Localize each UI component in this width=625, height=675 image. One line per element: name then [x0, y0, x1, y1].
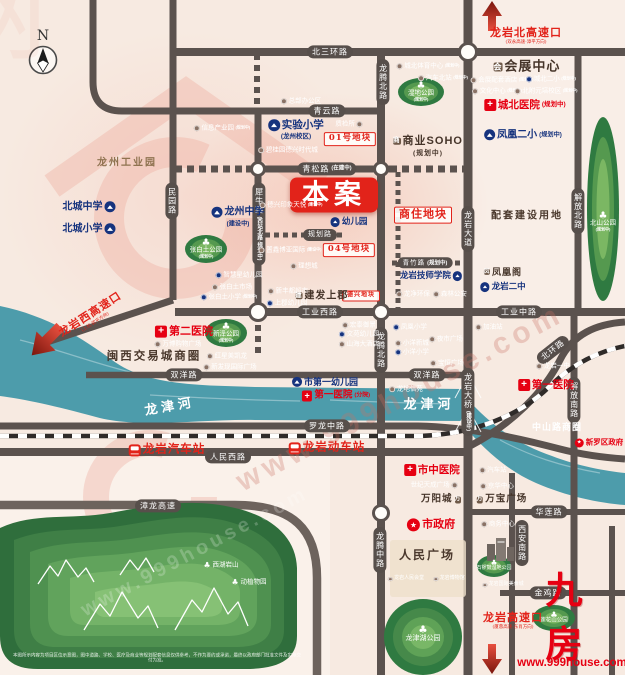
highway-exit-label-text: 龙岩高速口	[483, 612, 543, 625]
district-label-99: 中山路商圈	[532, 422, 582, 432]
tree-icon: ♣	[418, 626, 427, 635]
road-pill-text: 双洋路	[414, 370, 441, 379]
minor-poi-text: 城北二小	[534, 75, 560, 82]
park-label-subtext: (规划中)	[199, 254, 214, 258]
school-poi-text: 凤凰二小	[497, 129, 537, 141]
school-poi-text: 实验小学	[282, 119, 324, 131]
park-label-108: ♣动植物园	[232, 580, 267, 587]
minor-poi-72: 上郡幼儿园	[267, 299, 307, 306]
tree-icon: ♣	[232, 580, 239, 587]
poi-dot-icon	[433, 577, 438, 582]
poi-dot-icon	[194, 125, 200, 131]
minor-poi-87: 加油站	[475, 323, 502, 330]
road-pill-text: 工业西路	[302, 307, 338, 316]
landmark-icon: 凤	[484, 269, 490, 275]
school-icon	[105, 202, 116, 213]
logo-url: www.999house.com	[517, 657, 625, 669]
road-pill-text: 北三环路	[312, 47, 348, 56]
poi-dot-icon	[339, 341, 345, 347]
road-pill-13: 华莲路	[531, 505, 568, 518]
minor-poi-58: 总部办公区	[281, 97, 321, 104]
park-label-100: ♣张白土公园(规划中)	[190, 239, 223, 258]
poi-dot-icon	[388, 577, 393, 582]
school-poi-text: 龙州中学	[225, 207, 265, 219]
hospital-cross-icon	[484, 99, 496, 111]
area-label-32: 闽西交易城商圈	[107, 350, 202, 363]
landmark-poi-text: 商业SOHO	[403, 135, 463, 148]
road-pill-text: 罗龙中路	[309, 421, 345, 430]
landmark-poi-57: 万万宝广场	[477, 495, 527, 506]
minor-poi-88: 龙岩一中	[536, 362, 570, 369]
park-label-text: 西湖岩山	[213, 563, 239, 570]
minor-poi-text: 龙净环保	[404, 290, 430, 297]
minor-poi-92: 汽车站	[479, 466, 506, 473]
compass-label: N	[37, 28, 49, 44]
station-poi-51: 龙岩动车站	[289, 441, 366, 454]
road-pill-2: 青松路(在建中)	[297, 162, 356, 175]
hospital-poi-43: 城北医院(规划中)	[484, 99, 565, 111]
poi-dot-icon	[479, 467, 485, 473]
minor-poi-text: 红星美凯龙	[215, 352, 248, 359]
location-map: 九房网 www.999house.com www.999house.com 北三…	[0, 0, 625, 675]
school-poi-text: 市第一幼儿园	[304, 377, 358, 387]
school-poi-text: 北城中学	[63, 201, 103, 213]
park-label-106: ♣石锣鼓湿地公园	[476, 560, 511, 572]
minor-poi-text: 会展配套酒店	[478, 76, 517, 83]
minor-poi-text: 世纪天成广场	[411, 481, 450, 488]
landmark-poi-text: 万阳城	[421, 495, 453, 506]
highway-exit-label-109: 龙岩北高速口(双永高速·漳平方向)	[490, 27, 562, 45]
school-poi-34: 实验小学(龙州校区)	[268, 119, 324, 141]
road-pill-subtext: (规划中)	[427, 260, 447, 266]
minor-poi-text: 新发现国际广场	[211, 363, 257, 370]
landmark-icon: 商	[393, 137, 401, 145]
road-pill-text: 北环路	[540, 338, 567, 362]
parcel-label-text: 04号地块	[328, 245, 370, 255]
minor-poi-61: 质检所	[335, 120, 362, 127]
road-pill-text: 龙岩大道	[463, 211, 472, 247]
minor-poi-83: 小洋小学	[395, 348, 429, 355]
minor-poi-text: 山海大酒店	[347, 340, 380, 347]
minor-poi-78: 宏泰御景	[342, 321, 376, 328]
minor-poi-91: 新发现国际广场	[203, 363, 256, 370]
minor-poi-98: 龙岩国际美食城	[482, 582, 523, 588]
minor-poi-text: 张白土小学	[208, 293, 241, 300]
parcel-label-27: 04号地块	[323, 243, 375, 257]
minor-poi-text: 信息产业园	[201, 124, 234, 131]
parcel-label-text: 01号地块	[329, 134, 371, 144]
minor-poi-text: 龙岩博物馆	[440, 576, 465, 582]
road-pill-4: 工业西路	[297, 305, 343, 318]
poi-dot-icon	[429, 336, 435, 342]
landmark-poi-text: 凤凰阁	[492, 267, 522, 277]
poi-dot-icon	[393, 324, 399, 330]
minor-poi-text: 龙岩国际美食城	[489, 582, 524, 588]
minor-poi-text: 总部办公区	[289, 97, 322, 104]
minor-poi-74: 张白土市场	[212, 283, 252, 290]
minor-poi-63: 汽车北站(规划中)	[418, 74, 468, 81]
poi-dot-icon	[480, 483, 486, 489]
road-pill-0: 北三环路	[307, 45, 353, 58]
minor-poi-67: 北附元培校区(规划中)	[515, 87, 578, 94]
school-poi-text: 北城小学	[63, 223, 103, 235]
minor-poi-59: 信息产业园(规划中)	[194, 124, 250, 131]
minor-poi-subtext: (规划中)	[235, 126, 250, 131]
minor-poi-text: 碧桂园德兴时代城	[266, 146, 318, 153]
school-poi-text: 龙岩技师学院	[400, 271, 451, 281]
poi-dot-icon	[451, 482, 457, 488]
minor-poi-text: 智慧星幼儿园	[223, 271, 262, 278]
poi-dot-icon	[267, 300, 273, 306]
poi-dot-icon	[389, 386, 395, 392]
school-icon	[268, 119, 280, 131]
minor-poi-89: 万博购物广场	[155, 340, 202, 347]
road-pill-text: 青竹路	[403, 259, 426, 266]
poi-dot-icon	[396, 291, 402, 297]
park-label-text: 石锣鼓湿地公园	[476, 567, 511, 572]
minor-poi-93: 京华中心	[480, 482, 514, 489]
school-poi-subtext: (规划中)	[539, 131, 562, 138]
minor-poi-text: 凤凰小学	[401, 323, 427, 330]
star-icon	[407, 518, 420, 531]
poi-dot-icon	[268, 288, 274, 294]
road-pill-text: 龙腾中路	[375, 532, 384, 568]
minor-poi-71: 新丰都超市	[268, 287, 308, 294]
minor-poi-76: 龙净环保	[396, 290, 430, 297]
area-label-text: 闽西交易城商圈	[107, 350, 202, 363]
landmark-poi-52: 会会展中心	[494, 60, 561, 75]
road-pill-subtext: (在建中)	[331, 166, 351, 172]
star-icon	[575, 439, 584, 448]
school-icon	[484, 130, 495, 141]
minor-poi-text: 汽车站	[487, 466, 507, 473]
road-pill-text: 龙岩大桥	[463, 373, 472, 409]
road-pill-6: 青竹路(规划中)	[398, 257, 453, 268]
minor-poi-82: 小洋新城	[395, 339, 429, 346]
area-label-text: 龙州工业园	[97, 157, 157, 169]
minor-poi-84: 夜市广场	[429, 335, 463, 342]
poi-dot-icon	[482, 583, 487, 588]
road-pill-text: 人民西路	[210, 452, 246, 461]
map-labels-layer: 北三环路青云路青松路(在建中)规划路工业西路工业中路青竹路(规划中)双洋路双洋路…	[0, 0, 625, 675]
road-pill-10: 人民西路	[205, 450, 251, 463]
poi-dot-icon	[260, 202, 266, 208]
road-pill-text: 解放北路	[573, 193, 582, 229]
school-poi-36: 北城小学	[63, 223, 116, 235]
minor-poi-81: 凤凰小学	[393, 323, 427, 330]
poi-dot-icon	[471, 77, 477, 83]
minor-poi-text: 小洋新城	[403, 339, 429, 346]
minor-poi-65: 城北二小(规划中)	[526, 75, 576, 82]
road-pill-8: 双洋路	[409, 368, 446, 381]
minor-poi-text: 商务中心	[489, 520, 515, 527]
road-pill-17: 民园路	[165, 183, 178, 220]
hospital-poi-text: 第二医院	[169, 326, 213, 339]
poi-dot-icon	[155, 341, 161, 347]
minor-poi-85: 宝恒广场	[430, 359, 464, 366]
minor-poi-62: 城北体育中心(规划中)	[397, 62, 460, 69]
poi-dot-icon	[342, 322, 348, 328]
minor-poi-subtext: (规划中)	[242, 295, 257, 300]
park-label-101: ♣新泽公园(规划中)	[213, 323, 239, 342]
minor-poi-94: 世纪天成广场	[411, 481, 458, 488]
road-pill-text: 华莲路	[536, 507, 563, 516]
river-label-113: 龙津河	[403, 399, 454, 414]
poi-dot-icon	[433, 291, 439, 297]
minor-poi-96: 龙岩人民会堂	[388, 576, 424, 582]
hospital-poi-text: 市中医院	[418, 464, 460, 476]
hospital-poi-subtext: (规划中)	[542, 101, 566, 108]
area-label-text: 人民广场	[399, 549, 455, 563]
hospital-poi-45: 第一医院(分院)	[302, 391, 370, 402]
minor-poi-73: 智慧星幼儿园	[216, 271, 263, 278]
government-poi-text: 市政府	[422, 519, 455, 532]
minor-poi-text: 张白土市场	[220, 283, 253, 290]
hospital-poi-47: 市中医院	[404, 464, 460, 476]
road-pill-9: 罗龙中路	[304, 419, 350, 432]
poi-dot-icon	[216, 272, 222, 278]
road-pill-15: 龙腾北路	[376, 59, 389, 105]
minor-poi-90: 红星美凯龙	[207, 352, 247, 359]
area-label-30: 配套建设用地	[491, 210, 563, 222]
highway-exit-label-111: 龙岩高速口(厦蓉高速·东肖方向)	[483, 612, 543, 630]
minor-poi-subtext: (规划中)	[561, 77, 576, 82]
bus-icon	[129, 444, 141, 456]
poi-dot-icon	[395, 340, 401, 346]
road-pill-text: 漳龙高速	[140, 501, 176, 510]
poi-dot-icon	[536, 363, 542, 369]
minor-poi-text: 置鑫博亚国际	[266, 246, 305, 253]
river-label-text: 龙津河	[144, 396, 197, 420]
poi-dot-icon	[258, 147, 264, 153]
poi-dot-icon	[201, 294, 207, 300]
poi-dot-icon	[430, 360, 436, 366]
park-label-subtext: (规划中)	[219, 338, 234, 342]
minor-poi-text: 宝恒广场	[438, 359, 464, 366]
minor-poi-text: 汽车北站	[426, 74, 452, 81]
minor-poi-subtext: (规划中)	[563, 89, 578, 94]
government-poi-text: 新罗区政府	[586, 439, 624, 448]
minor-poi-subtext: (建设中)	[308, 203, 323, 208]
hospital-cross-icon	[518, 379, 530, 391]
hospital-cross-icon	[155, 326, 167, 338]
river-label-text: 龙津河	[403, 399, 454, 414]
school-poi-text: 幼儿园	[342, 217, 368, 227]
area-label-33: 人民广场	[399, 549, 455, 563]
river-label-112: 龙津河	[144, 396, 197, 420]
train-icon	[289, 442, 301, 454]
minor-poi-text: 加油站	[483, 323, 503, 330]
school-icon	[292, 377, 302, 387]
landmark-poi-53: 商商业SOHO(规划中)	[393, 135, 463, 157]
road-pill-5: 工业中路	[496, 305, 542, 318]
minor-poi-subtext: (规划中)	[453, 76, 468, 81]
minor-poi-86: 龙地信苑	[389, 385, 423, 392]
minor-poi-text: 质检所	[335, 120, 355, 127]
minor-poi-77: 森林公安	[433, 290, 467, 297]
minor-poi-text: 小洋小学	[403, 348, 429, 355]
landmark-poi-subtext: (规划中)	[393, 149, 463, 157]
poi-dot-icon	[203, 364, 209, 370]
landmark-icon: 万	[477, 497, 483, 503]
minor-poi-text: 理想城	[298, 262, 318, 269]
minor-poi-text: 森林公安	[441, 290, 467, 297]
road-pill-3: 规划路	[303, 229, 337, 241]
road-pill-text: 青松路	[302, 164, 329, 173]
school-poi-subtext: (龙州校区)	[268, 133, 324, 140]
landmark-icon: 万	[455, 497, 461, 503]
hospital-poi-text: 第一医院	[314, 391, 352, 402]
minor-poi-text: 文苑幼儿园	[347, 330, 380, 337]
road-pill-1: 青云路	[309, 104, 346, 117]
hospital-poi-subtext: (分院)	[354, 393, 370, 400]
minor-poi-95: 商务中心	[481, 520, 515, 527]
park-label-subtext: (规划中)	[596, 227, 611, 231]
station-poi-text: 龙岩动车站	[303, 441, 366, 454]
landmark-poi-55: 凤凤凰阁	[484, 267, 522, 277]
road-pill-text: 青云路	[314, 106, 341, 115]
hospital-poi-text: 第一医院	[532, 379, 574, 391]
school-icon	[453, 271, 462, 280]
road-pill-text: 规划路	[308, 231, 332, 239]
parcel-label-text: 德兴地块	[347, 293, 375, 300]
park-label-103: ♣北山公园(规划中)	[590, 212, 616, 231]
minor-poi-97: 龙岩博物馆	[433, 576, 464, 582]
minor-poi-70: 理想城	[290, 262, 317, 269]
road-pill-19: 龙岩大道	[461, 206, 474, 252]
government-poi-49: 新罗区政府	[575, 439, 624, 448]
highway-exit-label-text: 龙岩北高速口	[490, 27, 562, 40]
road-pill-11: 漳龙高速	[135, 499, 181, 512]
school-poi-42: 龙岩技师学院	[400, 271, 462, 281]
minor-poi-text: 龙岩人民会堂	[394, 576, 424, 582]
minor-poi-64: 会展配套酒店(规划中)	[471, 76, 534, 83]
poi-dot-icon	[515, 88, 521, 94]
station-poi-text: 龙岩汽车站	[143, 443, 206, 456]
landmark-icon: 会	[494, 63, 503, 72]
road-pill-text: 双洋路	[171, 370, 198, 379]
minor-poi-text: 宏泰御景	[350, 321, 376, 328]
tree-icon: ♣	[204, 563, 211, 570]
park-label-102: ♣湿地公园(规划中)	[408, 82, 434, 101]
road-pill-20: 解放北路	[571, 188, 584, 234]
minor-poi-text: 上郡幼儿园	[275, 299, 308, 306]
minor-poi-text: 龙岩一中	[544, 362, 570, 369]
district-label-text: 中山路商圈	[532, 422, 582, 432]
minor-poi-75: 张白土小学(规划中)	[201, 293, 257, 300]
school-poi-37: 龙州中学(建设中)	[212, 207, 265, 228]
area-label-text: 配套建设用地	[491, 210, 563, 222]
park-label-text: 龙津湖公园	[406, 635, 441, 642]
minor-poi-text: 北附元培校区	[522, 87, 561, 94]
parcel-label-26: 01号地块	[324, 132, 376, 146]
poi-dot-icon	[290, 263, 296, 269]
minor-poi-subtext: (建设中)	[307, 248, 322, 253]
poi-dot-icon	[259, 247, 265, 253]
hospital-poi-text: 城北医院	[498, 99, 540, 111]
landmark-poi-text: 建发上郡	[304, 290, 348, 302]
minor-poi-80: 山海大酒店	[339, 340, 379, 347]
area-label-31: 龙州工业园	[97, 157, 157, 169]
school-poi-35: 北城中学	[63, 201, 116, 213]
landmark-poi-text: 万宝广场	[485, 495, 527, 506]
poi-dot-icon	[339, 331, 345, 337]
minor-poi-text: 夜市广场	[437, 335, 463, 342]
minor-poi-60: 碧桂园德兴时代城	[258, 146, 318, 153]
station-poi-50: 龙岩汽车站	[129, 443, 206, 456]
poi-dot-icon	[472, 88, 478, 94]
landmark-poi-56: 万阳城万	[421, 495, 461, 506]
park-label-subtext: (规划中)	[414, 97, 429, 101]
park-label-107: ♣西湖岩山	[204, 563, 239, 570]
parcel-label-28: 商住地块	[394, 207, 452, 224]
poi-dot-icon	[526, 76, 532, 82]
road-pill-subtext: (建设中)	[465, 411, 471, 431]
school-icon	[480, 282, 489, 291]
hospital-cross-icon	[404, 464, 416, 476]
road-pill-text: 西安南路	[517, 525, 526, 561]
school-icon	[331, 217, 340, 226]
hospital-poi-44: 第二医院	[155, 326, 213, 339]
minor-poi-text: 城北体育中心	[404, 62, 443, 69]
school-poi-subtext: (建设中)	[212, 220, 265, 227]
highway-exit-label-text: 龙岩西高速口	[57, 290, 124, 340]
minor-poi-text: 文化中心	[480, 87, 506, 94]
poi-dot-icon	[395, 349, 401, 355]
school-poi-text: 龙岩二中	[492, 282, 526, 292]
poi-dot-icon	[212, 284, 218, 290]
minor-poi-text: 新丰都超市	[276, 287, 309, 294]
road-pill-text: 工业中路	[501, 307, 537, 316]
road-pill-7: 双洋路	[166, 368, 203, 381]
map-disclaimer: 本图所示内容为项目区位示意图，图中道路、学校、医疗及商业等规划配套信息仅供参考，…	[11, 653, 303, 664]
park-label-104: ♣龙津湖公园	[406, 626, 441, 642]
school-icon	[212, 207, 223, 218]
road-pill-text: 龙腾北路	[378, 64, 387, 100]
school-poi-40: 幼儿园	[331, 217, 368, 227]
minor-poi-79: 文苑幼儿园	[339, 330, 379, 337]
school-icon	[105, 224, 116, 235]
government-poi-48: 市政府	[407, 518, 455, 531]
school-poi-41: 龙岩二中	[480, 282, 525, 292]
parcel-label-text: 商住地块	[399, 209, 447, 222]
school-poi-39: 市第一幼儿园	[292, 377, 358, 387]
poi-dot-icon	[481, 521, 487, 527]
school-poi-38: 凤凰二小(规划中)	[484, 129, 562, 141]
poi-dot-icon	[475, 324, 481, 330]
road-pill-22: 龙腾中路	[373, 527, 386, 573]
minor-poi-69: 置鑫博亚国际(建设中)	[259, 246, 322, 253]
poi-dot-icon	[356, 121, 362, 127]
highway-exit-label-subtext: (双永高速·漳平方向)	[506, 40, 547, 45]
minor-poi-text: 龙地信苑	[397, 385, 423, 392]
park-label-text: 动植物园	[241, 580, 267, 587]
road-pill-text: 民园路	[167, 188, 176, 215]
road-pill-24: 龙岩大桥(建设中)	[461, 368, 474, 436]
minor-poi-text: 德兴印象天悦	[267, 201, 306, 208]
minor-poi-68: 德兴印象天悦(建设中)	[260, 201, 323, 208]
hospital-poi-46: 第一医院	[518, 379, 574, 391]
minor-poi-subtext: (规划中)	[445, 64, 460, 69]
landmark-poi-text: 会展中心	[504, 60, 560, 75]
poi-dot-icon	[207, 353, 213, 359]
poi-dot-icon	[281, 98, 287, 104]
minor-poi-text: 京华中心	[488, 482, 514, 489]
highway-exit-label-subtext: (厦蓉高速·东肖方向)	[493, 625, 534, 630]
highway-exit-label-110: 龙岩西高速口(上杭·武平方向)	[57, 290, 127, 344]
hospital-cross-icon	[302, 391, 312, 401]
poi-dot-icon	[397, 63, 403, 69]
